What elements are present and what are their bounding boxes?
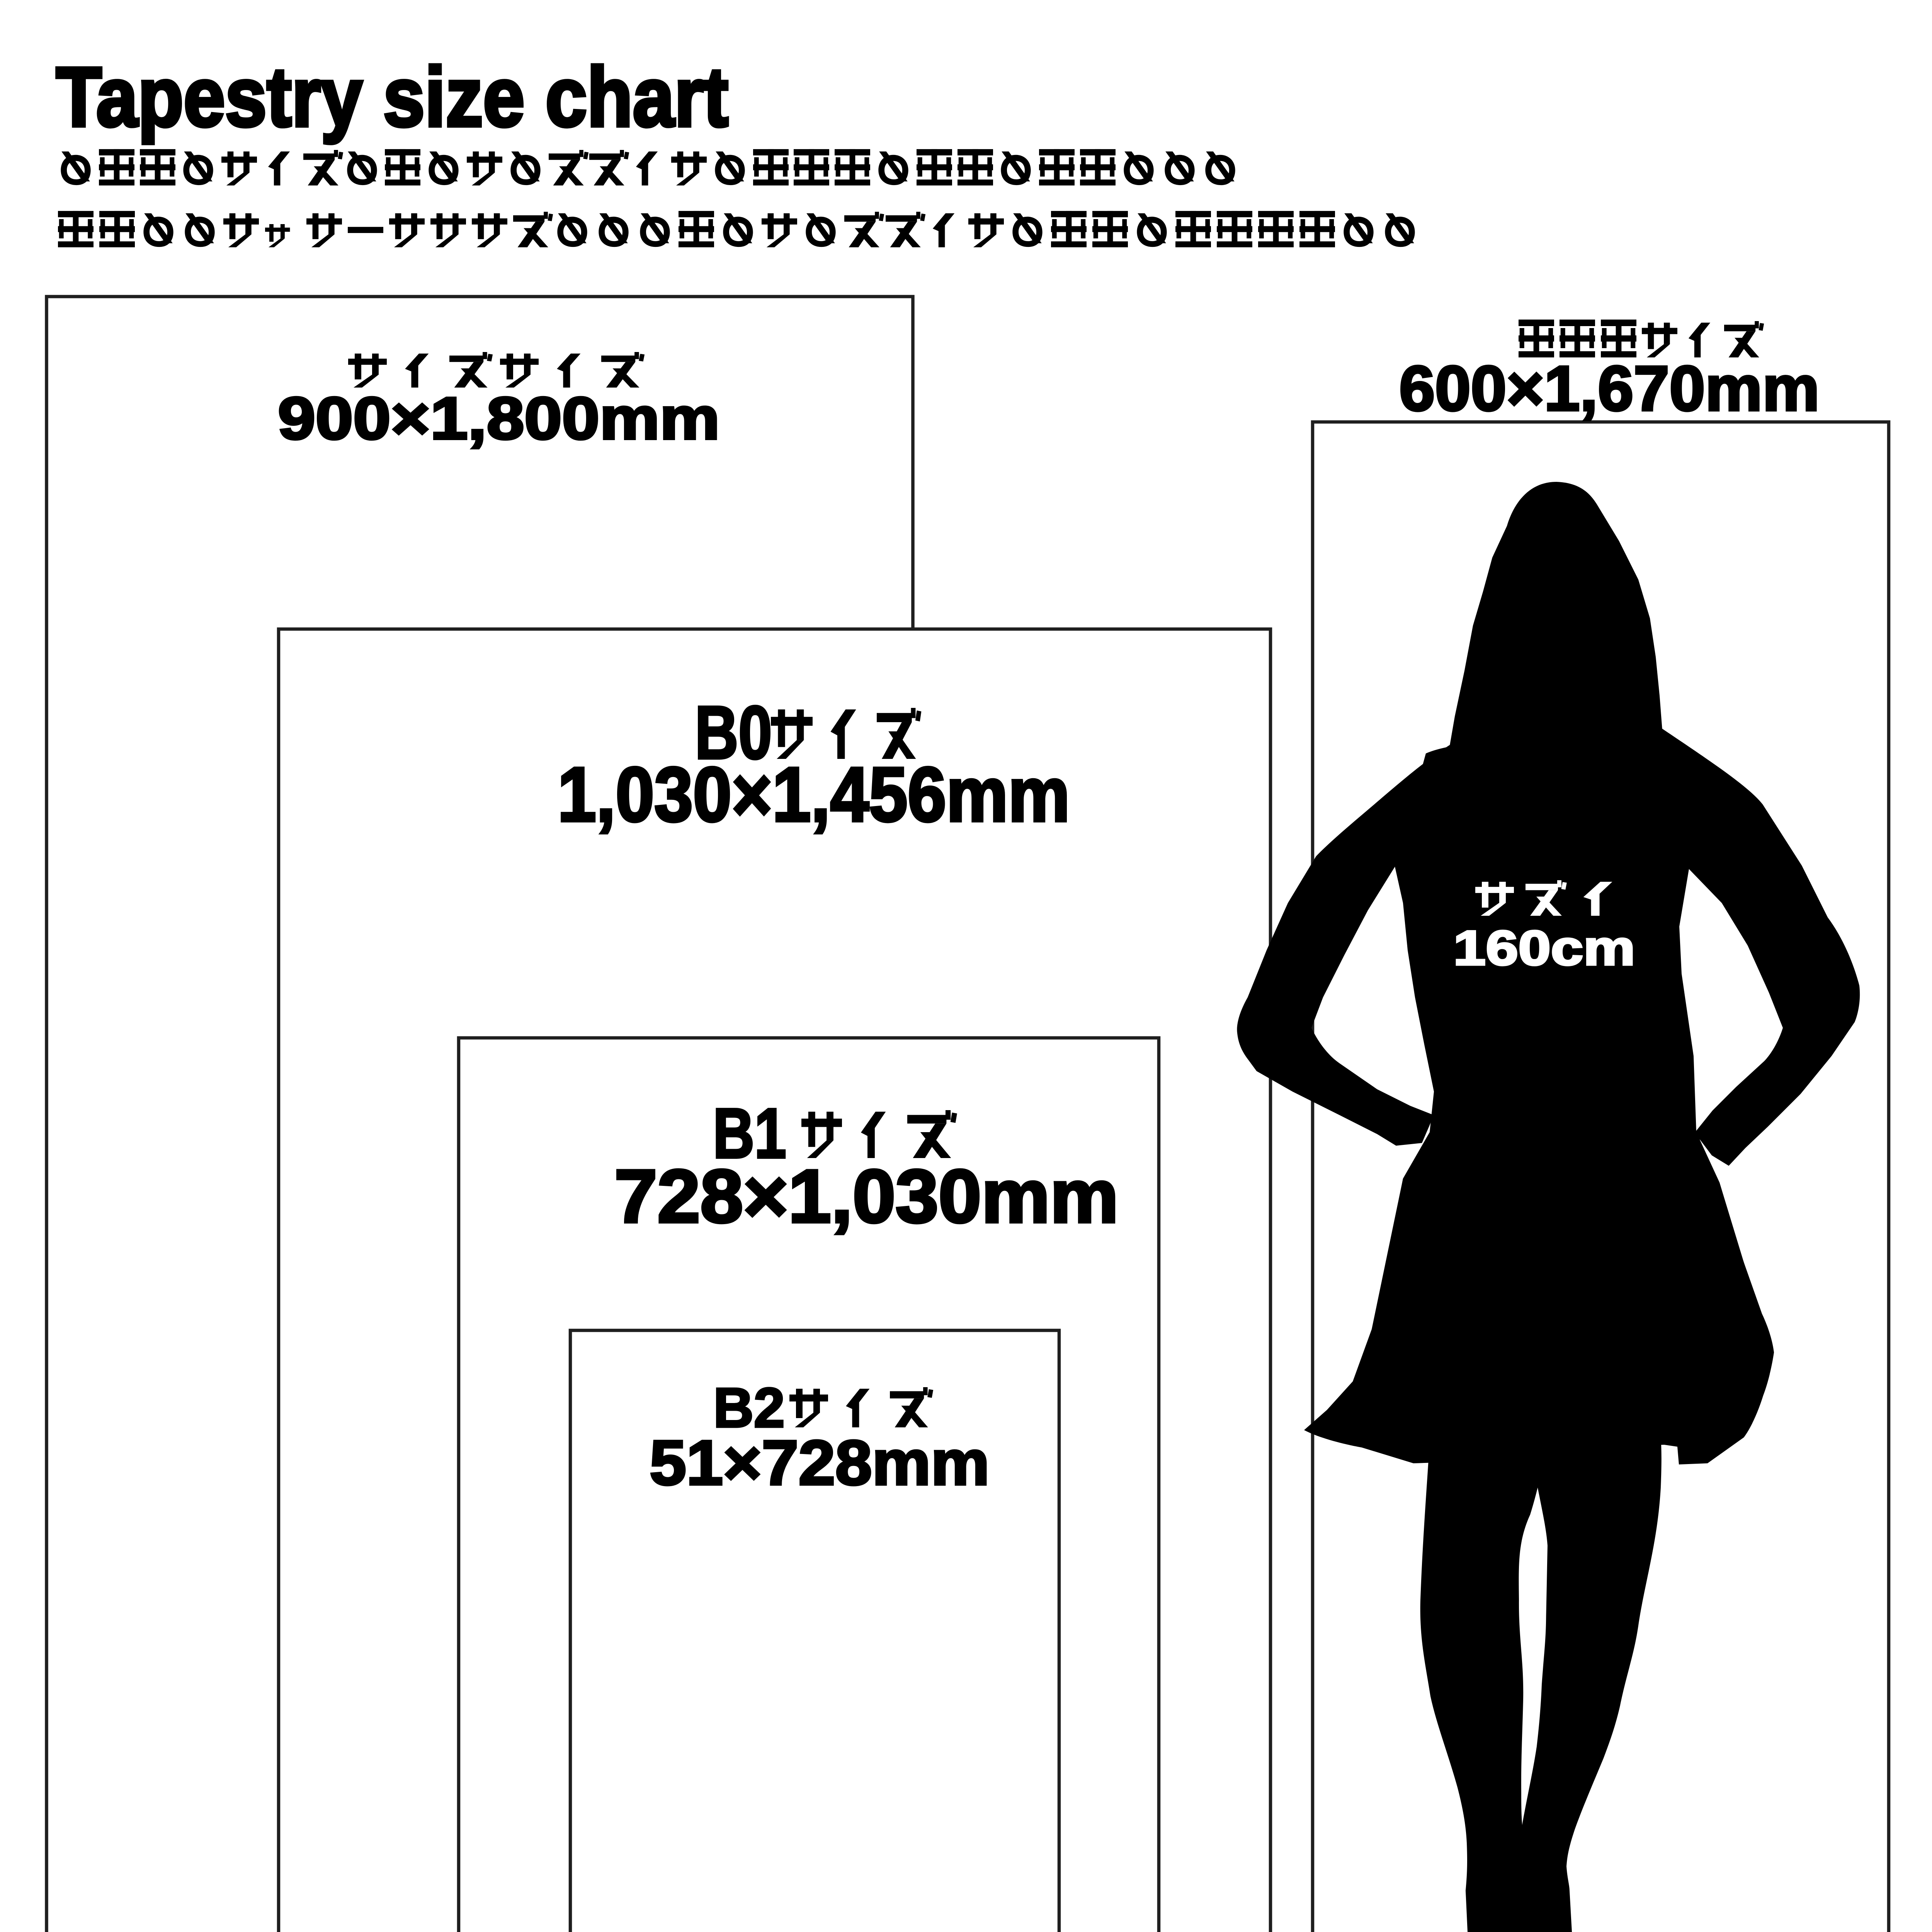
svg-text:900×1,800mm: 900×1,800mm (278, 385, 720, 452)
svg-text:600×1,670mm: 600×1,670mm (1399, 353, 1820, 424)
svg-text:160cm: 160cm (1453, 920, 1635, 975)
svg-text:1,030×1,456mm: 1,030×1,456mm (558, 752, 1070, 838)
svg-text:728×1,030mm: 728×1,030mm (614, 1154, 1119, 1238)
svg-text:Tapestry size chart: Tapestry size chart (56, 50, 728, 144)
svg-text:51×728mm: 51×728mm (650, 1427, 990, 1498)
